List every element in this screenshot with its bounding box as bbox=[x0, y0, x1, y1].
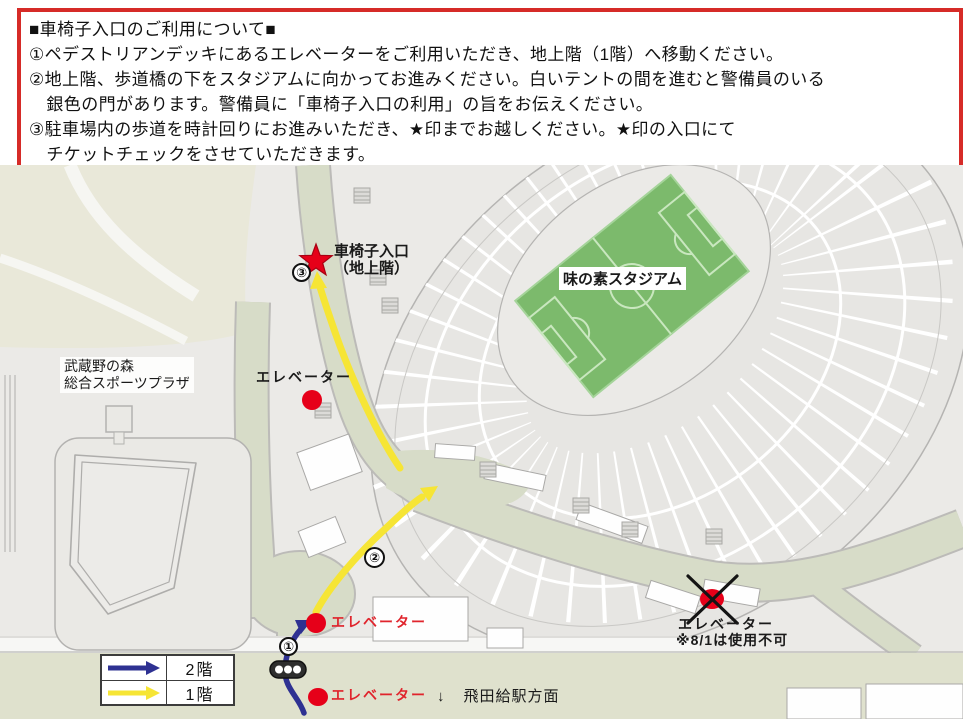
sports-plaza-label: 武蔵野の森 総合スポーツプラザ bbox=[60, 357, 194, 393]
elevator-dot-mid bbox=[306, 613, 326, 633]
plaza-label-line2: 総合スポーツプラザ bbox=[64, 375, 190, 392]
instruction-line-3: 銀色の門があります。警備員に「車椅子入口の利用」の旨をお伝えください。 bbox=[29, 92, 951, 117]
legend-1f-arrowhead bbox=[146, 686, 160, 700]
wheelchair-access-map-page: ■車椅子入口のご利用について■ ①ペデストリアンデッキにあるエレベーターをご利用… bbox=[0, 0, 963, 719]
park-area bbox=[0, 165, 256, 348]
instruction-box: ■車椅子入口のご利用について■ ①ペデストリアンデッキにあるエレベーターをご利用… bbox=[17, 8, 963, 169]
step-marker-2: ② bbox=[364, 547, 385, 568]
elevator-label-mid: エレベーター bbox=[331, 612, 427, 632]
instruction-title: ■車椅子入口のご利用について■ bbox=[29, 17, 951, 42]
step-marker-1: ① bbox=[279, 637, 298, 656]
instruction-line-1: ①ペデストリアンデッキにあるエレベーターをご利用いただき、地上階（1階）へ移動く… bbox=[29, 42, 951, 67]
elevator-label-nw: エレベーター bbox=[256, 367, 352, 387]
legend-row-2f: 2階 bbox=[102, 656, 233, 680]
step-marker-3: ③ bbox=[292, 263, 311, 282]
route-legend: 2階 1階 bbox=[100, 654, 235, 706]
station-down-arrow-icon: ↓ bbox=[437, 688, 446, 705]
elevator-dot-south bbox=[308, 688, 328, 706]
legend-2f-arrowhead bbox=[146, 661, 160, 675]
plaza-label-line1: 武蔵野の森 bbox=[64, 358, 190, 375]
stadium-name-label: 味の素スタジアム bbox=[559, 267, 686, 290]
sports-plaza-building bbox=[55, 406, 251, 650]
instruction-line-5: チケットチェックをさせていただきます。 bbox=[29, 142, 951, 167]
stadium-map bbox=[0, 165, 963, 719]
station-name: 飛田給駅方面 bbox=[464, 688, 560, 705]
legend-row-1f: 1階 bbox=[102, 680, 233, 705]
instruction-line-4: ③駐車場内の歩道を時計回りにお進みいただき、★印までお越しください。★印の入口に… bbox=[29, 117, 951, 142]
elevator-dot-nw bbox=[302, 390, 322, 410]
crossing-signal-icon bbox=[270, 661, 306, 678]
instruction-line-2: ②地上階、歩道橋の下をスタジアムに向かってお進みください。白いテントの間を進むと… bbox=[29, 67, 951, 92]
legend-label-2f: 2階 bbox=[167, 656, 233, 680]
elevator-east-note: ※8/1は使用不可 bbox=[676, 630, 788, 650]
entrance-label: 車椅子入口 （地上階） bbox=[334, 243, 409, 277]
station-direction-label: ↓飛田給駅方面 bbox=[437, 685, 560, 706]
entrance-label-line2: （地上階） bbox=[334, 260, 409, 277]
legend-arrow-2f bbox=[102, 656, 167, 680]
legend-arrow-1f bbox=[102, 681, 167, 705]
legend-label-1f: 1階 bbox=[167, 681, 233, 705]
entrance-label-line1: 車椅子入口 bbox=[334, 243, 409, 260]
elevator-label-south: エレベーター bbox=[331, 685, 427, 705]
map-canvas bbox=[0, 165, 963, 719]
